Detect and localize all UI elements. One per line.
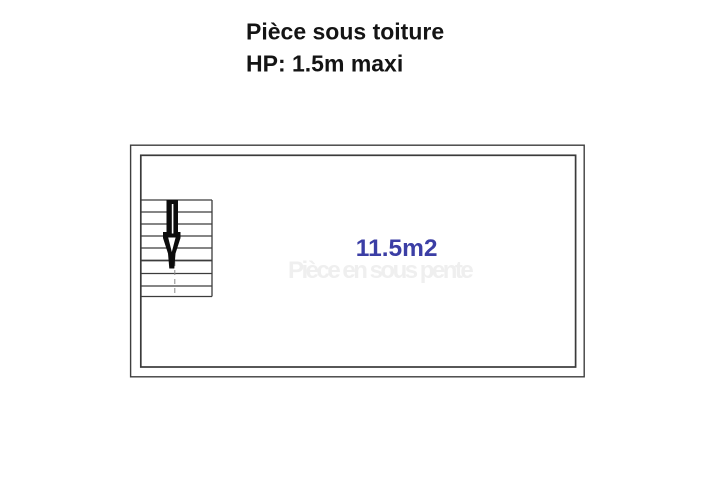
svg-text:HP: 1.5m maxi: HP: 1.5m maxi	[246, 51, 403, 77]
svg-text:11.5m2: 11.5m2	[356, 235, 438, 262]
svg-text:Pièce sous toiture: Pièce sous toiture	[246, 19, 444, 45]
